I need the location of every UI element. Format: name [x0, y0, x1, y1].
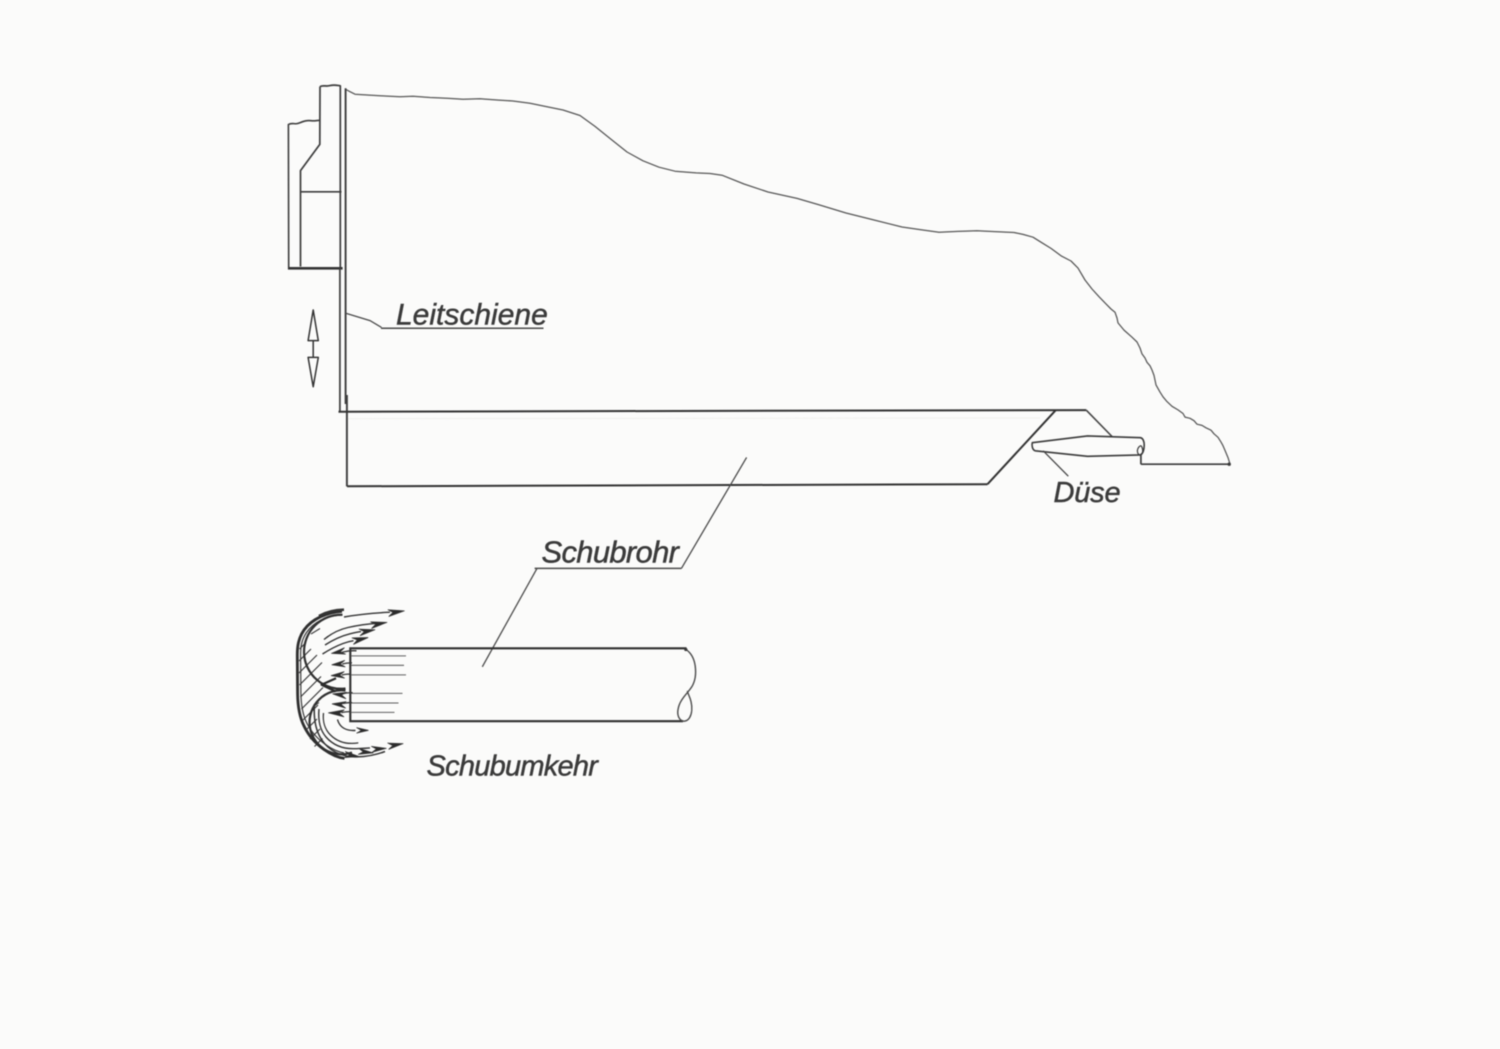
svg-text:Düse: Düse: [1054, 477, 1121, 509]
svg-text:Leitschiene: Leitschiene: [396, 299, 548, 332]
svg-text:Schubrohr: Schubrohr: [542, 535, 681, 570]
svg-text:Schubumkehr: Schubumkehr: [427, 751, 600, 783]
